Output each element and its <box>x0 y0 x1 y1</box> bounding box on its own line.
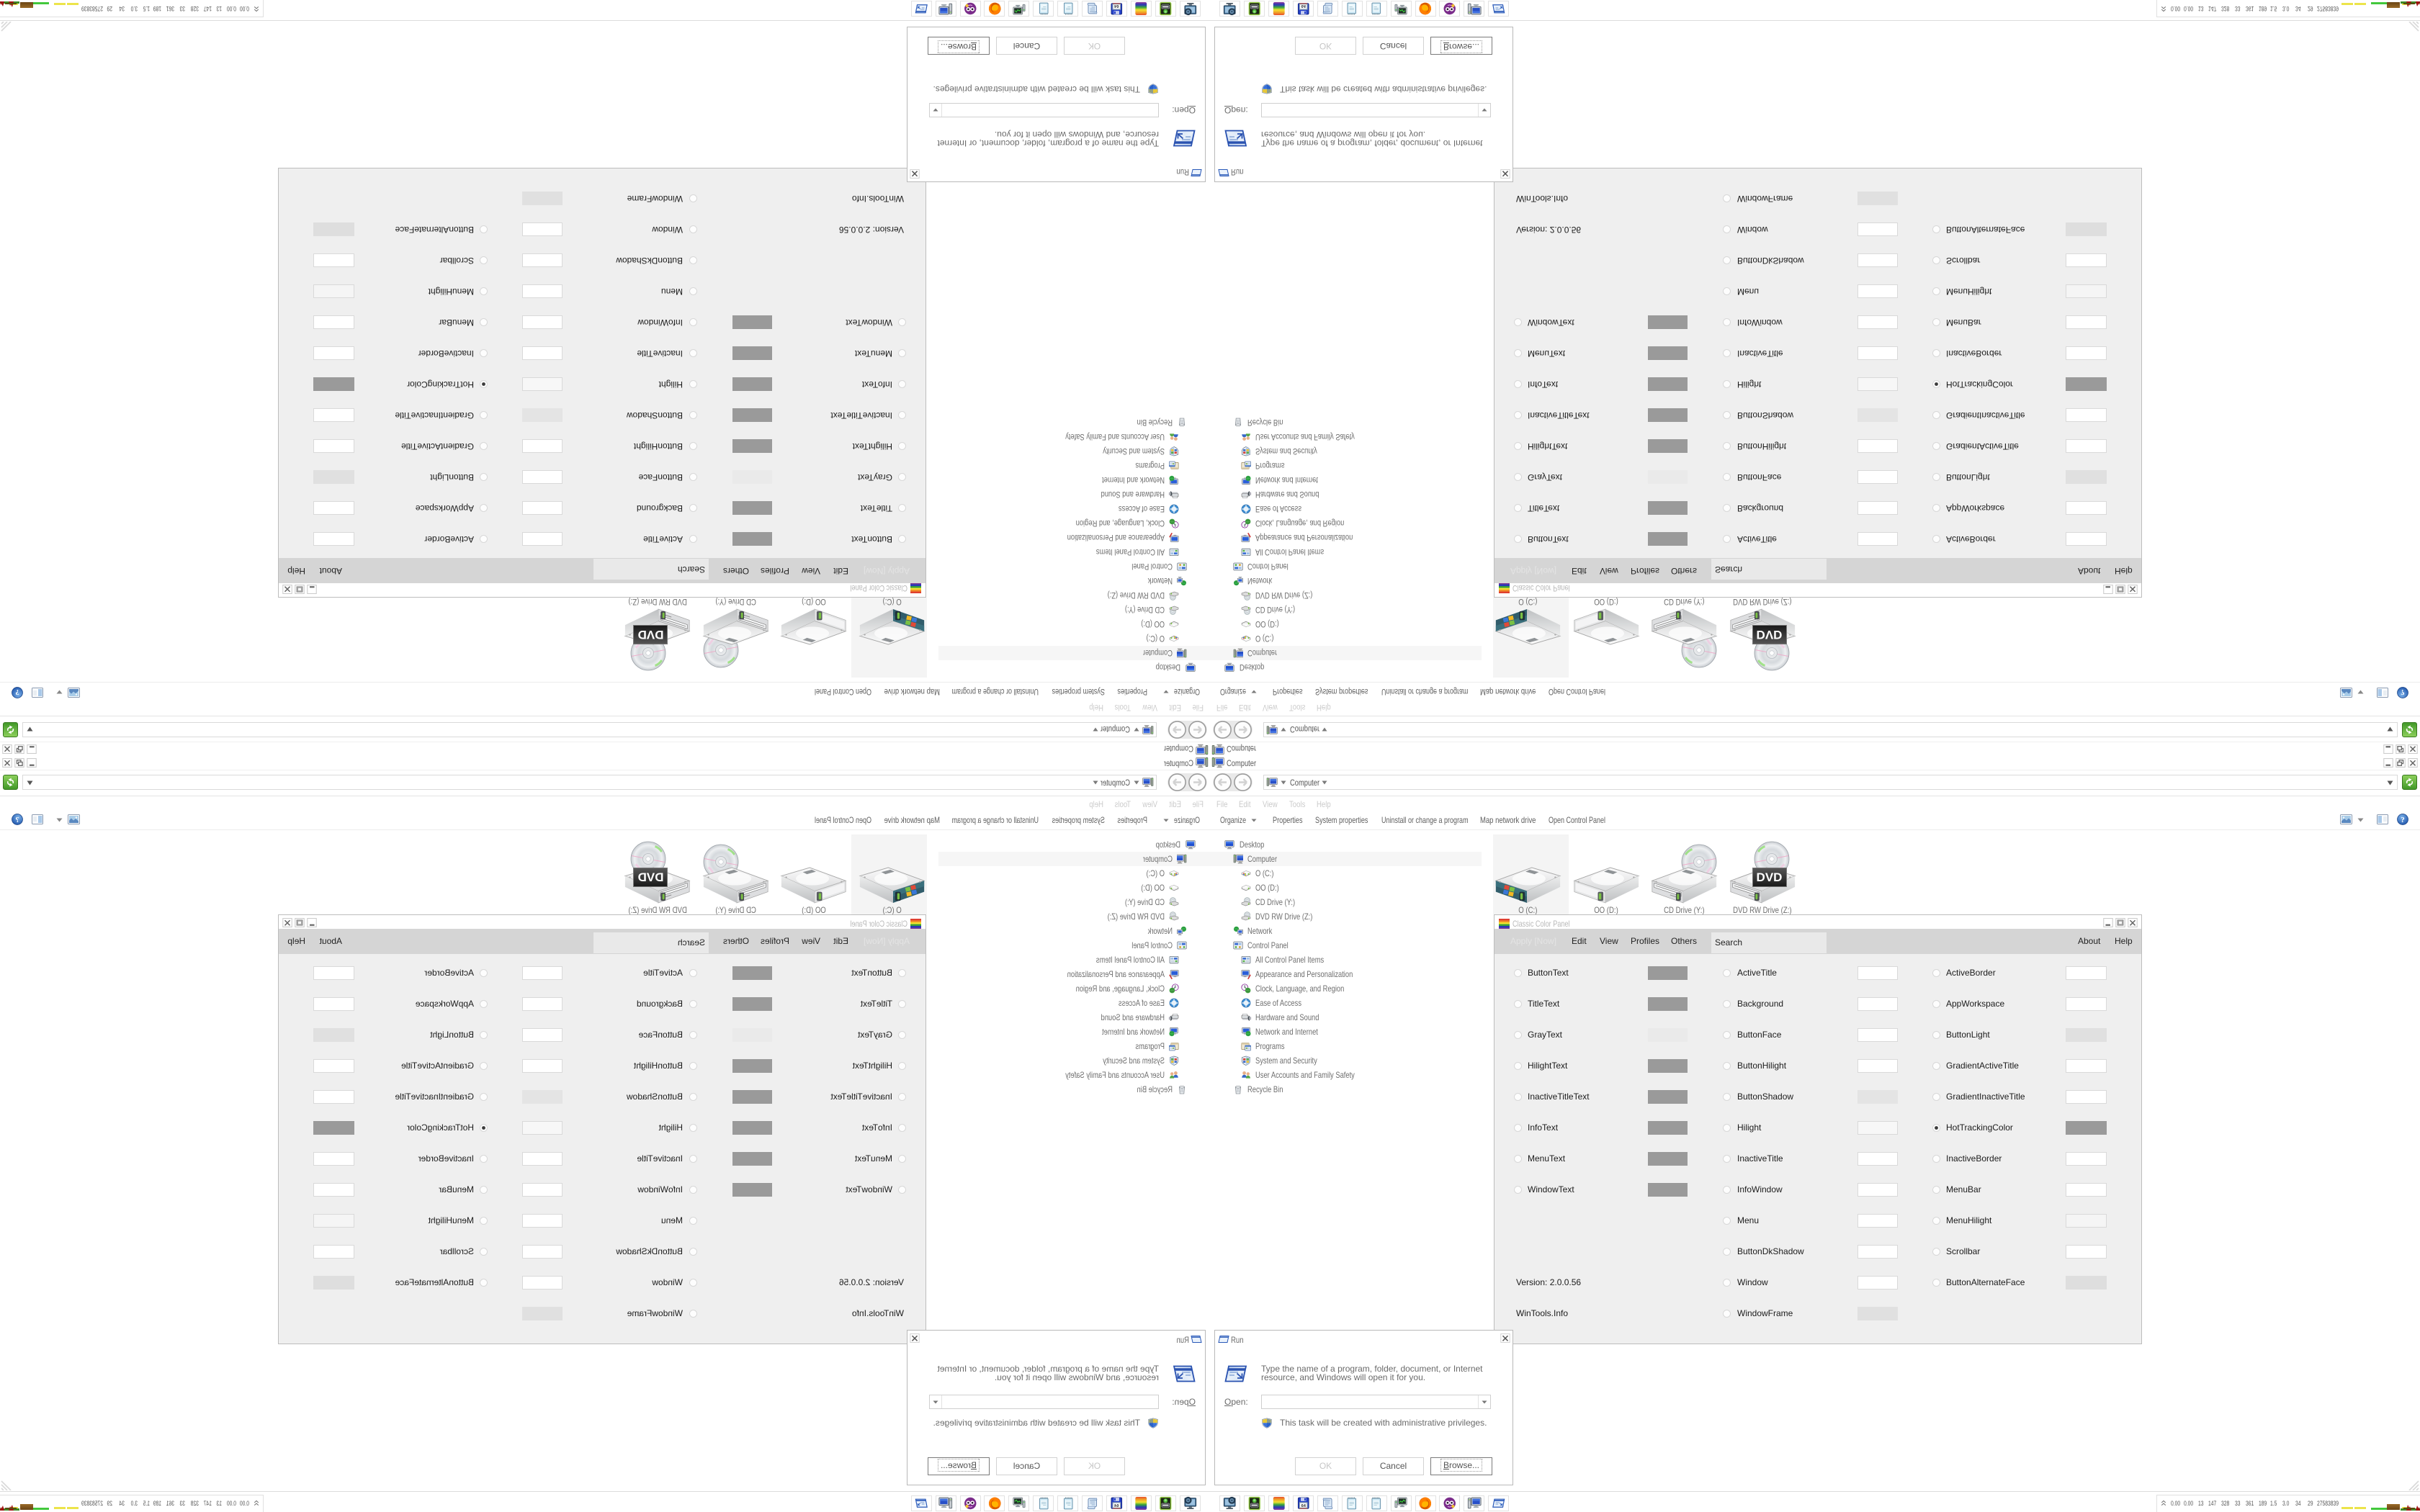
svg-text:64: 64 <box>1301 1504 1306 1508</box>
svg-text:?: ? <box>15 816 19 824</box>
svg-text:64: 64 <box>1114 1504 1119 1508</box>
svg-text:64: 64 <box>1301 4 1306 8</box>
svg-text:?: ? <box>15 688 19 696</box>
svg-text:?: ? <box>2401 816 2405 824</box>
svg-text:64: 64 <box>1114 4 1119 8</box>
svg-text:?: ? <box>2401 688 2405 696</box>
